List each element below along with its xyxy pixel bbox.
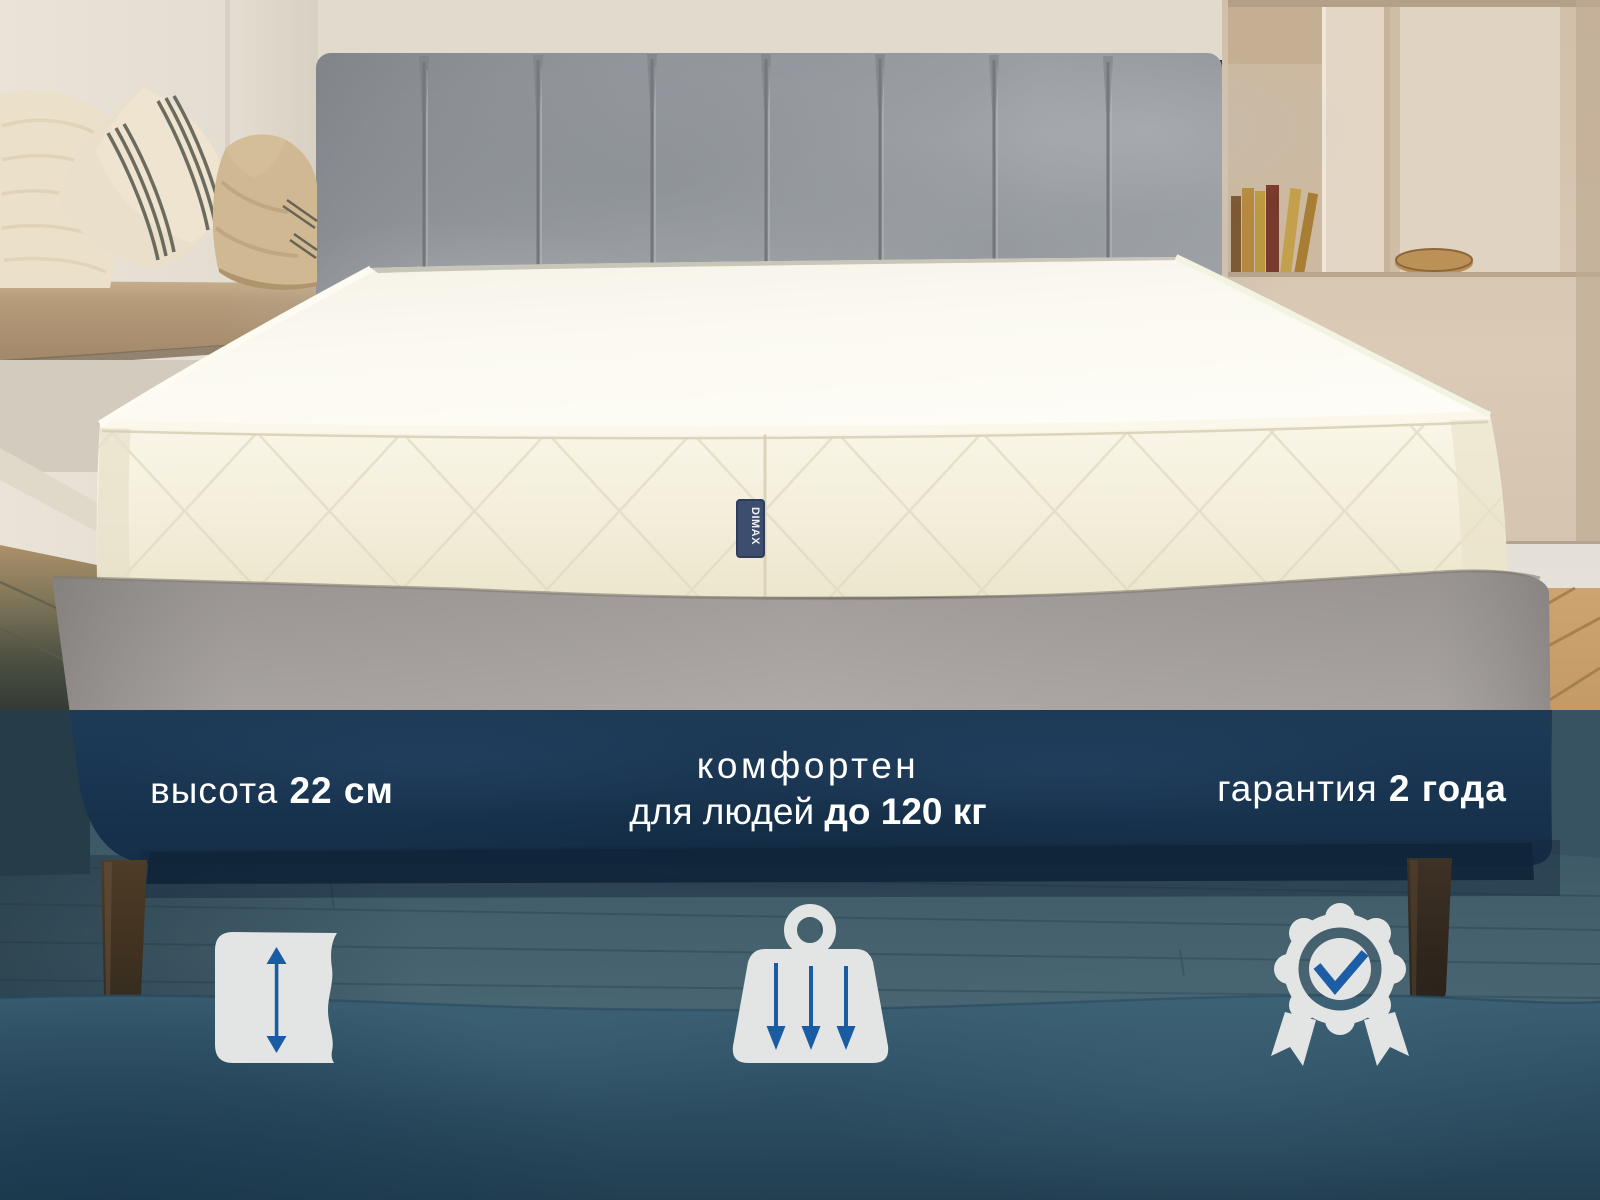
svg-text:DIMAX: DIMAX	[749, 507, 761, 545]
svg-text:гарантия 2 года: гарантия 2 года	[1217, 768, 1507, 809]
svg-text:для людей до 120 кг: для людей до 120 кг	[629, 791, 986, 832]
svg-text:высота 22 см: высота 22 см	[150, 770, 394, 811]
svg-text:комфортен: комфортен	[697, 745, 919, 786]
